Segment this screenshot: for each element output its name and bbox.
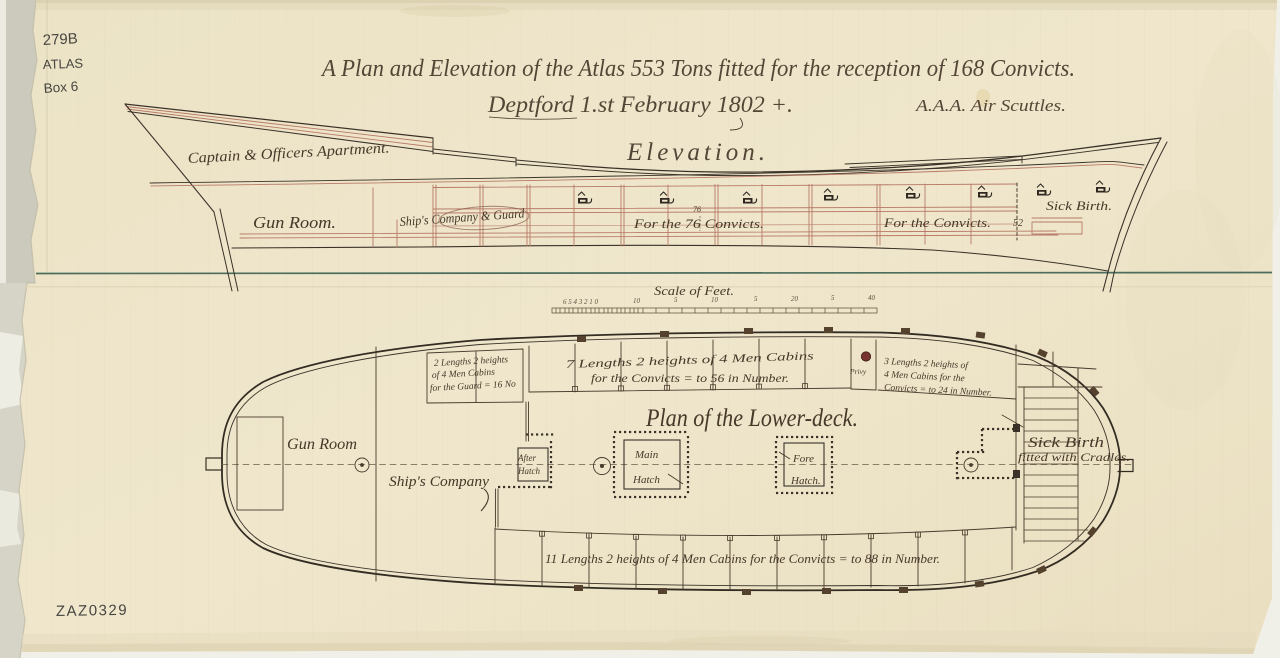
svg-text:Elevation.: Elevation. [626,139,765,166]
svg-text:Hatch.: Hatch. [790,475,821,487]
svg-text:Hatch: Hatch [632,474,660,486]
svg-text:A Plan and Elevation of the At: A Plan and Elevation of the Atlas 553 To… [320,56,1075,82]
svg-text:Box 6: Box 6 [43,79,78,96]
svg-text:20: 20 [791,295,799,303]
svg-text:279B: 279B [42,30,78,49]
svg-text:ZAZ0329: ZAZ0329 [56,602,128,620]
svg-text:A.A.A. Air Scuttles.: A.A.A. Air Scuttles. [915,96,1066,115]
svg-text:5: 5 [831,294,835,302]
svg-text:Hatch: Hatch [517,466,540,476]
svg-text:Plan of the Lower-deck.: Plan of the Lower-deck. [645,405,858,432]
svg-text:for the Convicts = to 56 in Nu: for the Convicts = to 56 in Number. [591,373,789,385]
svg-text:Gun Room.: Gun Room. [253,213,336,232]
svg-text:For the Convicts.: For the Convicts. [883,215,991,230]
svg-text:76: 76 [693,205,701,214]
svg-text:Deptford 1.st February 1802 +.: Deptford 1.st February 1802 +. [487,92,793,117]
svg-text:5: 5 [754,295,758,303]
svg-text:Privy: Privy [849,367,867,376]
svg-text:Sick Birth.: Sick Birth. [1046,198,1112,213]
svg-text:40: 40 [868,294,876,302]
svg-text:6 5 4 3 2 1 0: 6 5 4 3 2 1 0 [563,298,599,306]
svg-text:11 Lengths 2 heights of 4 Men: 11 Lengths 2 heights of 4 Men Cabins for… [545,551,940,566]
svg-text:10: 10 [633,297,641,305]
svg-text:For the 76 Convicts.: For the 76 Convicts. [633,216,764,231]
svg-text:ATLAS: ATLAS [43,56,84,72]
svg-text:10: 10 [711,296,719,304]
svg-text:fitted with Cradles.: fitted with Cradles. [1018,450,1130,464]
svg-text:Sick Birth: Sick Birth [1028,435,1104,451]
svg-text:Scale of Feet.: Scale of Feet. [654,283,734,298]
svg-text:Fore: Fore [792,453,814,465]
svg-text:5: 5 [674,296,678,304]
svg-text:52: 52 [1013,218,1023,229]
svg-text:Main: Main [634,449,659,461]
svg-text:Gun Room: Gun Room [287,436,357,453]
svg-text:After: After [517,453,536,463]
svg-text:Ship's Company: Ship's Company [389,474,489,490]
